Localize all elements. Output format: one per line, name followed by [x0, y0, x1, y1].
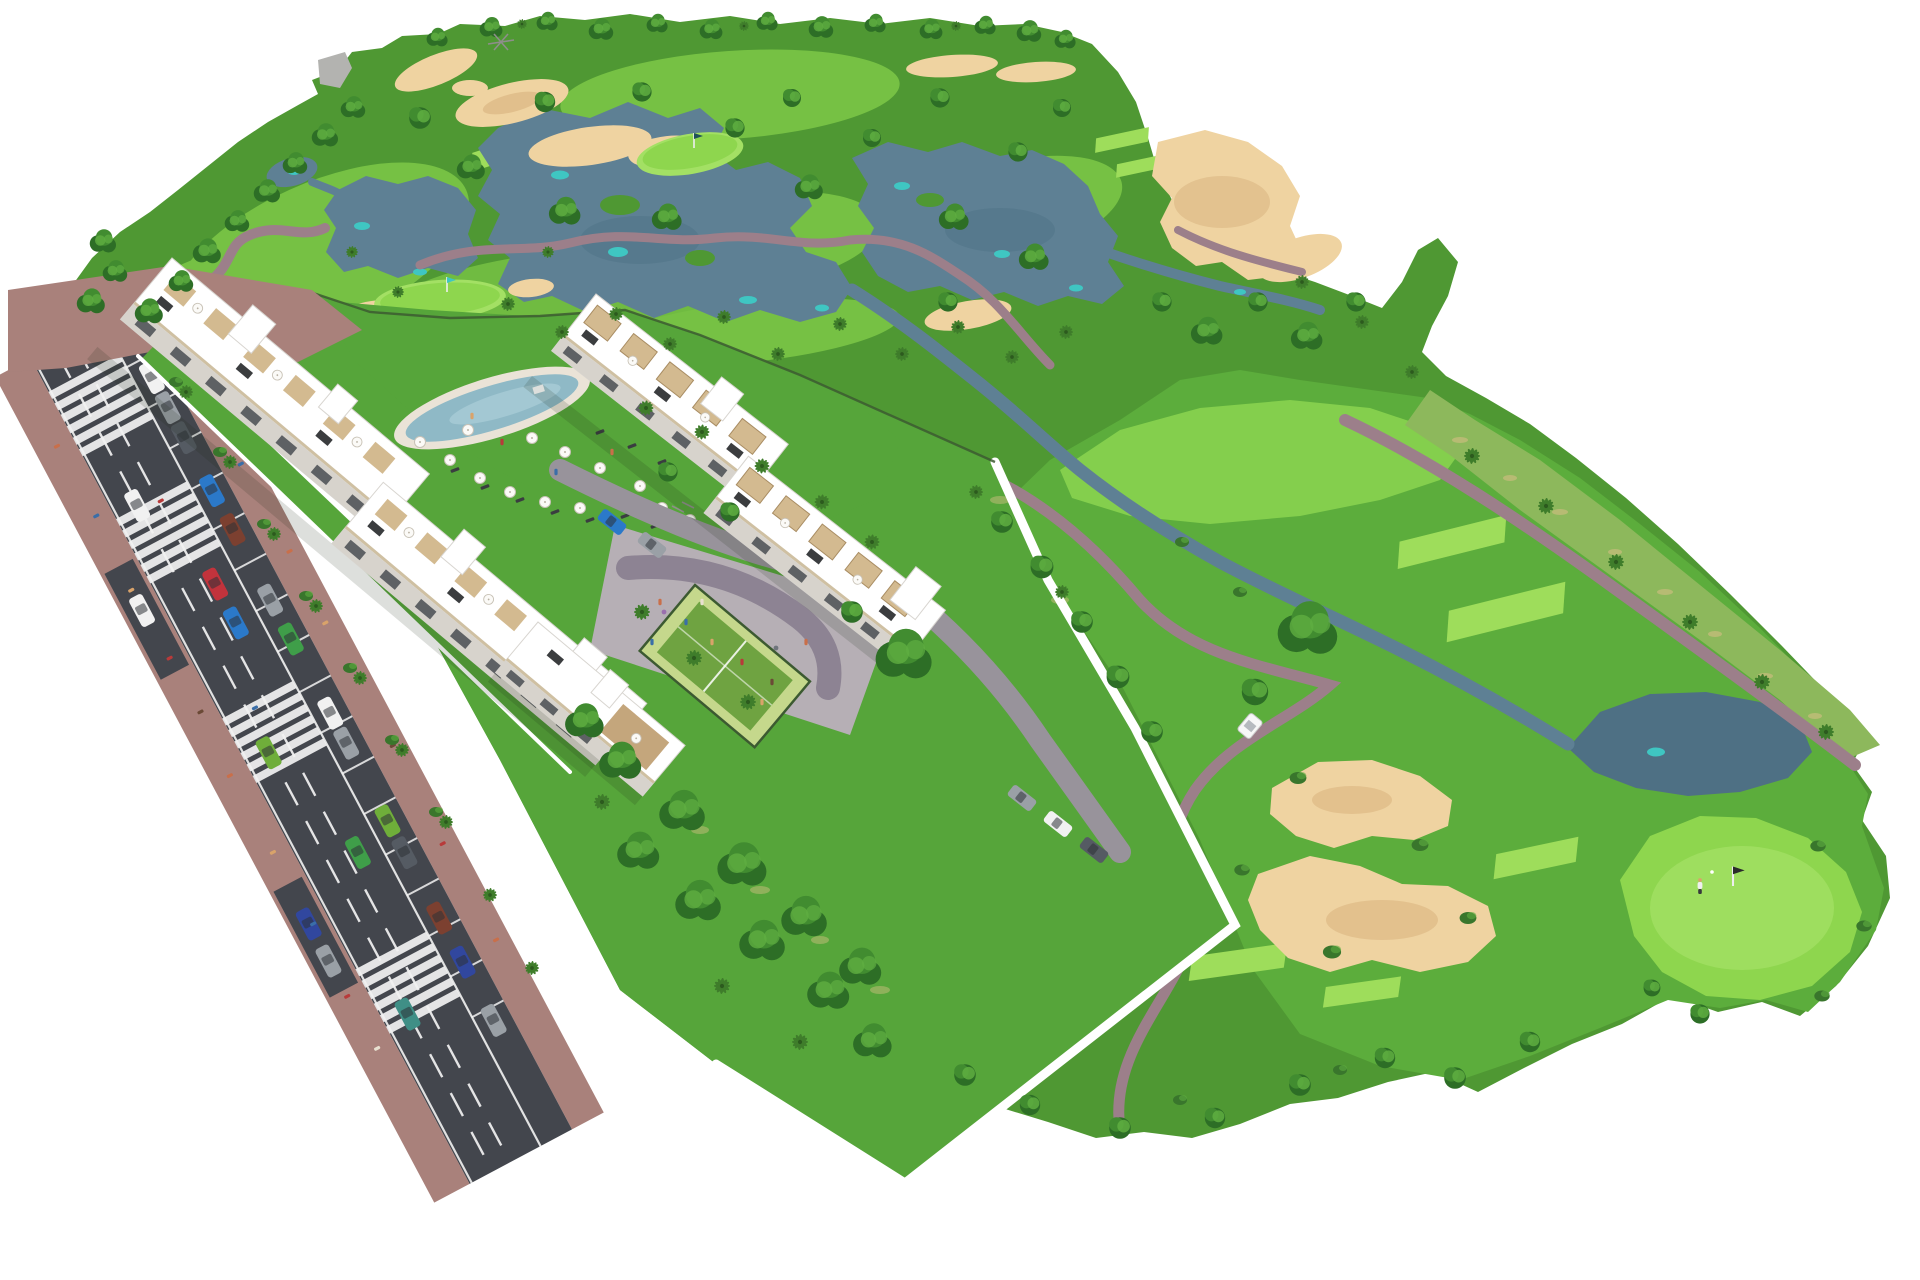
aerial-render: Golf resort residential development — ae… — [0, 0, 1920, 1280]
scene-canvas: Golf resort residential development — ae… — [0, 0, 1920, 1280]
golfer — [1698, 878, 1703, 894]
golf-ball — [1710, 870, 1714, 874]
